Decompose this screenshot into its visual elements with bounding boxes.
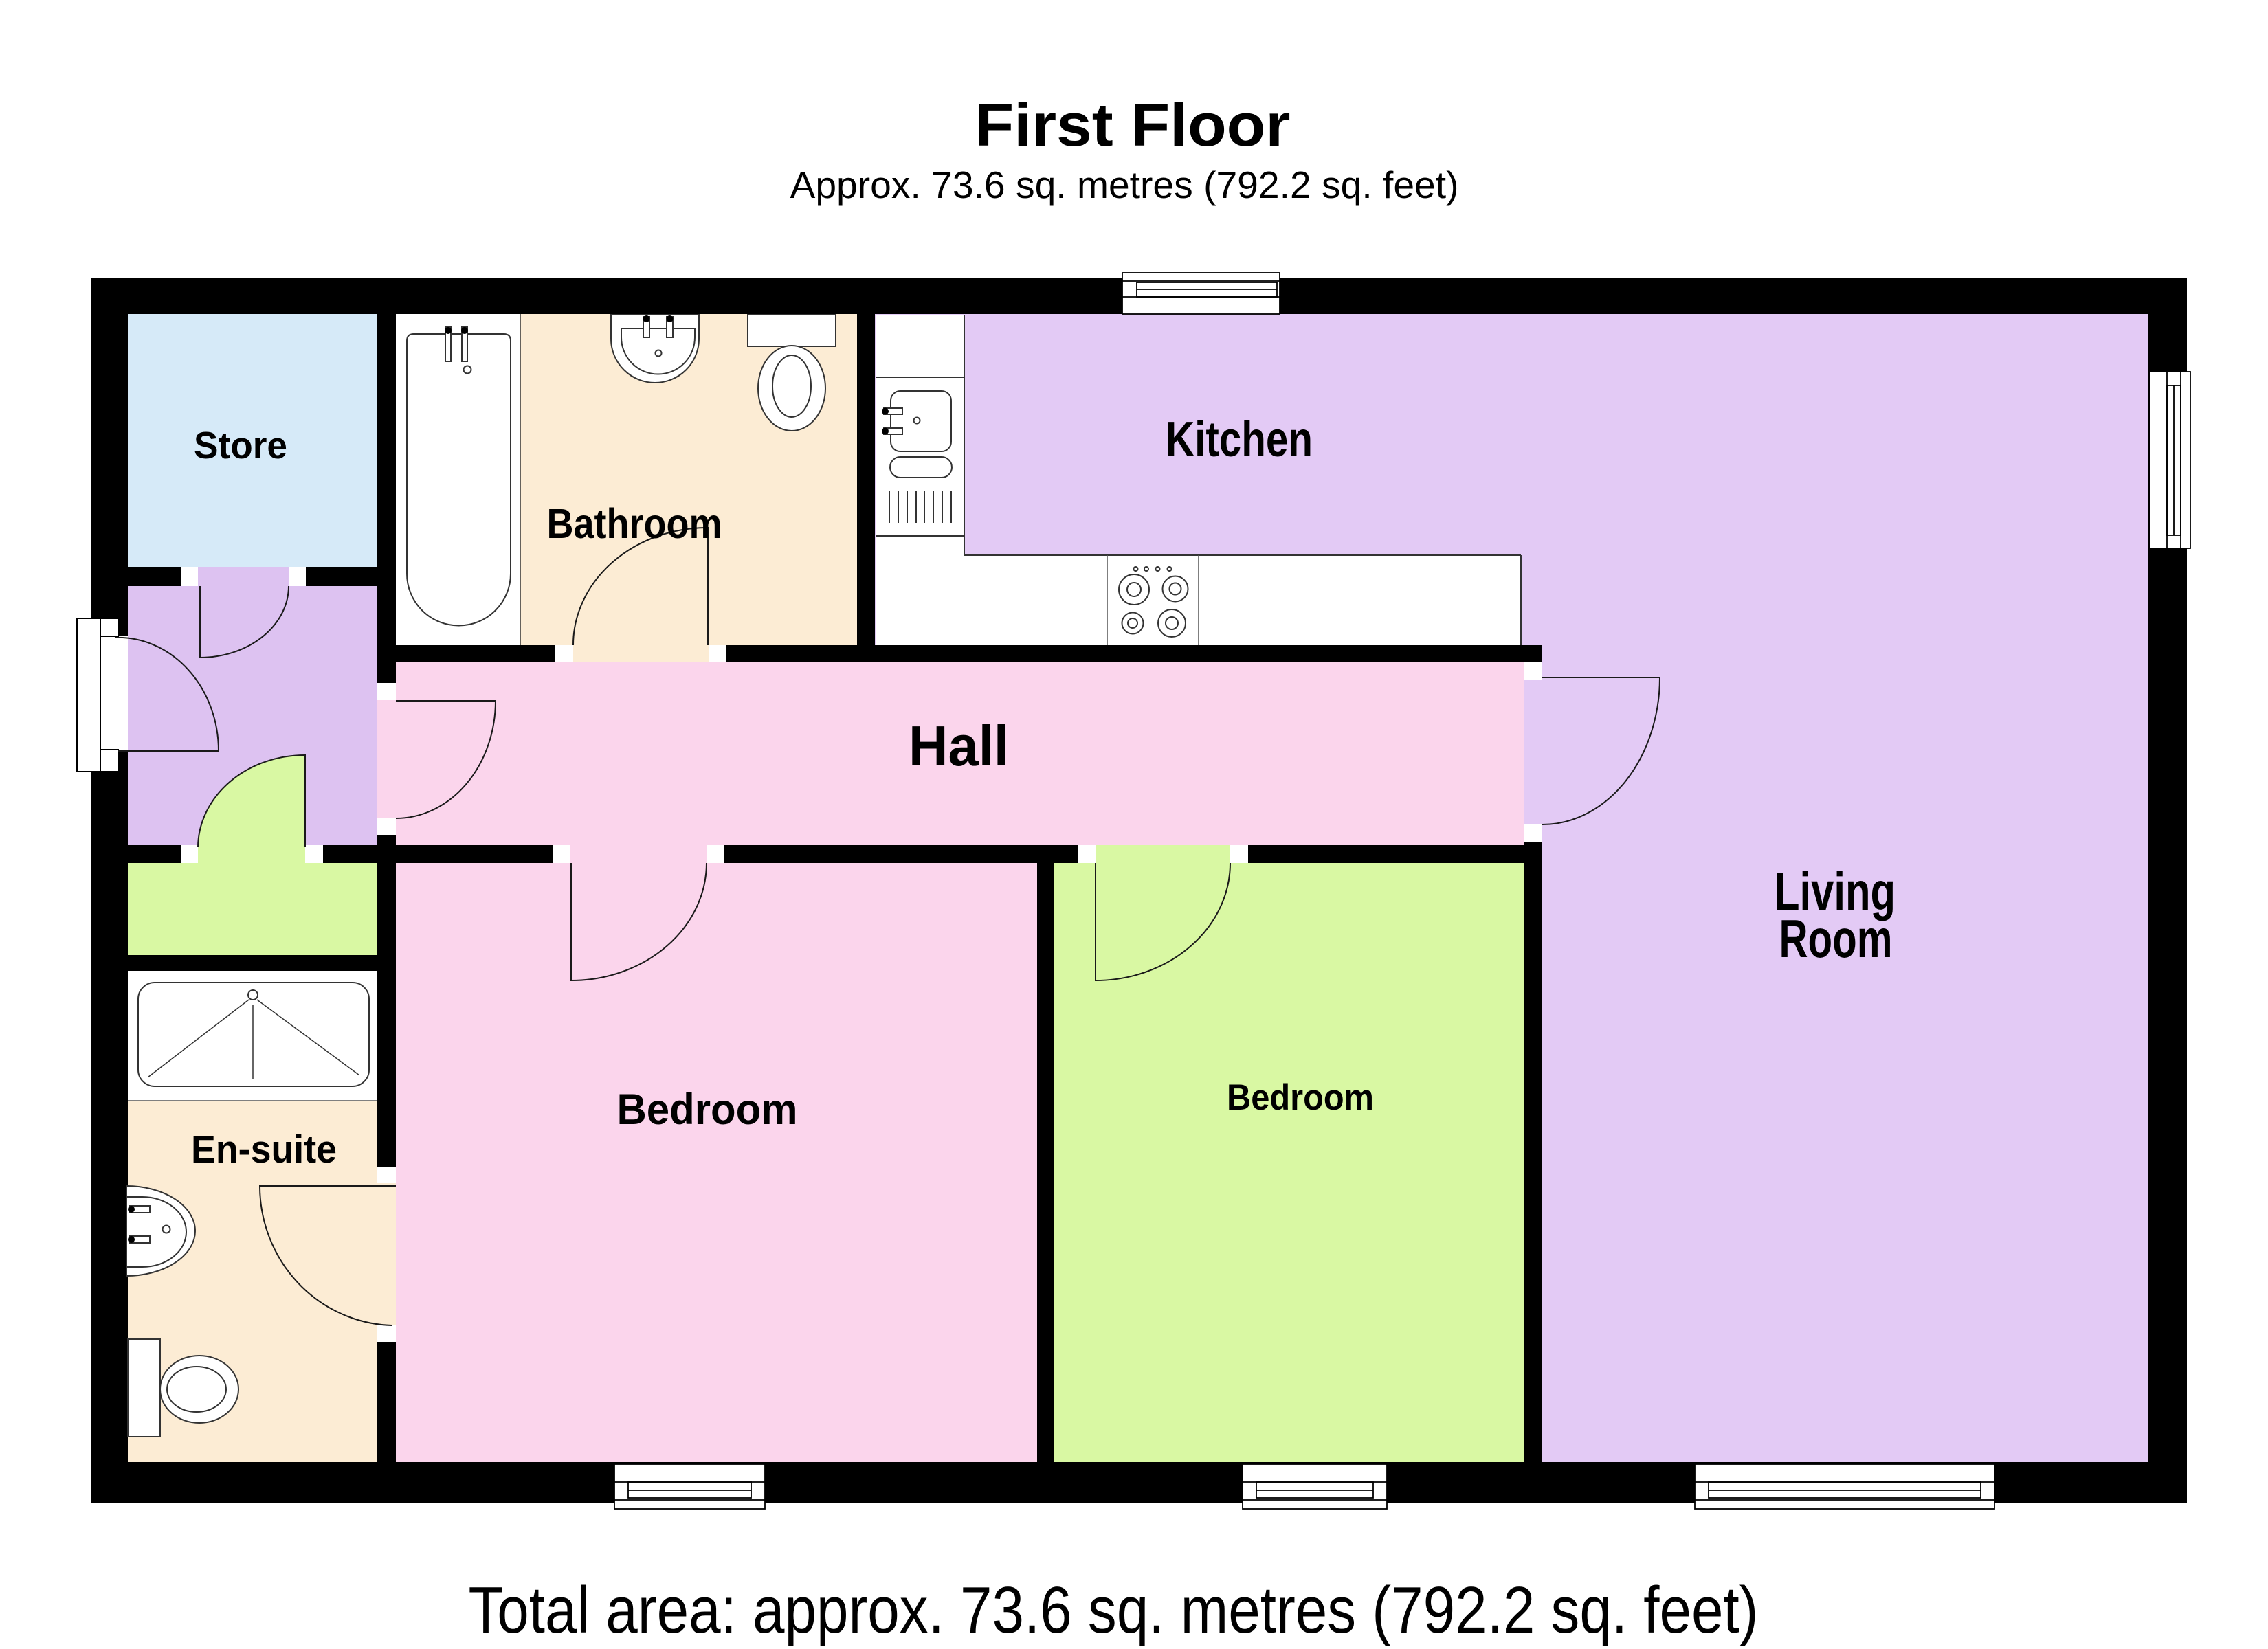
svg-text:Room: Room: [1779, 908, 1893, 969]
svg-text:Bedroom: Bedroom: [1227, 1077, 1374, 1118]
svg-text:Total area: approx. 73.6 sq. m: Total area: approx. 73.6 sq. metres (792…: [469, 1573, 1759, 1647]
svg-text:Hall: Hall: [909, 714, 1009, 778]
svg-text:Bathroom: Bathroom: [547, 500, 722, 547]
svg-text:Bedroom: Bedroom: [617, 1086, 798, 1134]
svg-text:First Floor: First Floor: [975, 91, 1291, 159]
svg-text:En-suite: En-suite: [191, 1128, 337, 1171]
svg-text:Kitchen: Kitchen: [1166, 412, 1313, 467]
svg-text:Approx. 73.6 sq. metres (792.2: Approx. 73.6 sq. metres (792.2 sq. feet): [790, 164, 1459, 206]
svg-text:Store: Store: [194, 424, 287, 467]
